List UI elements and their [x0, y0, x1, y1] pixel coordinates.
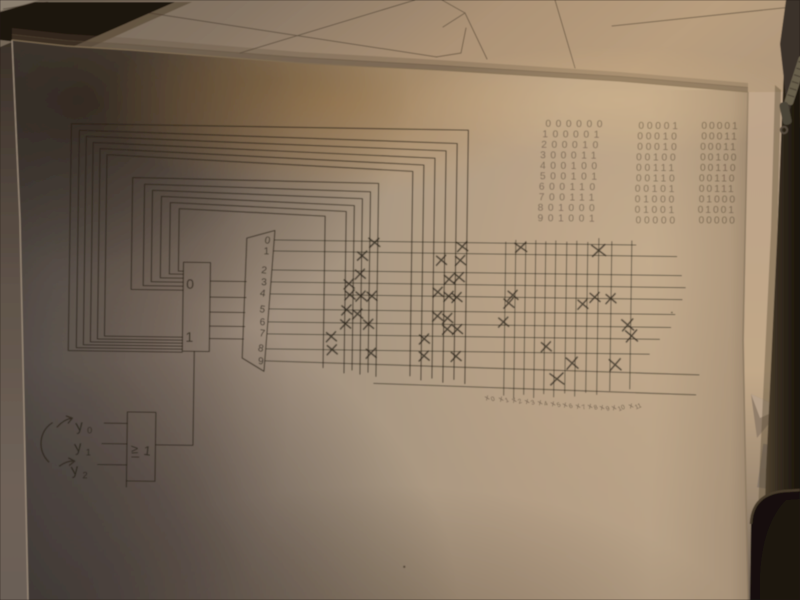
svg-text:00000: 00000 — [699, 215, 737, 226]
svg-text:3: 3 — [261, 277, 267, 288]
svg-text:2: 2 — [82, 470, 87, 480]
svg-text:901001: 901001 — [538, 213, 600, 225]
svg-text:1: 1 — [264, 246, 270, 257]
svg-text:0: 0 — [87, 425, 92, 435]
svg-text:0: 0 — [186, 276, 194, 292]
svg-text:9: 9 — [258, 356, 264, 367]
svg-text:1: 1 — [86, 447, 91, 457]
svg-text:≥: ≥ — [131, 441, 139, 456]
svg-text:00000: 00000 — [636, 215, 678, 226]
svg-text:6: 6 — [260, 317, 266, 328]
svg-text:1: 1 — [185, 329, 193, 345]
